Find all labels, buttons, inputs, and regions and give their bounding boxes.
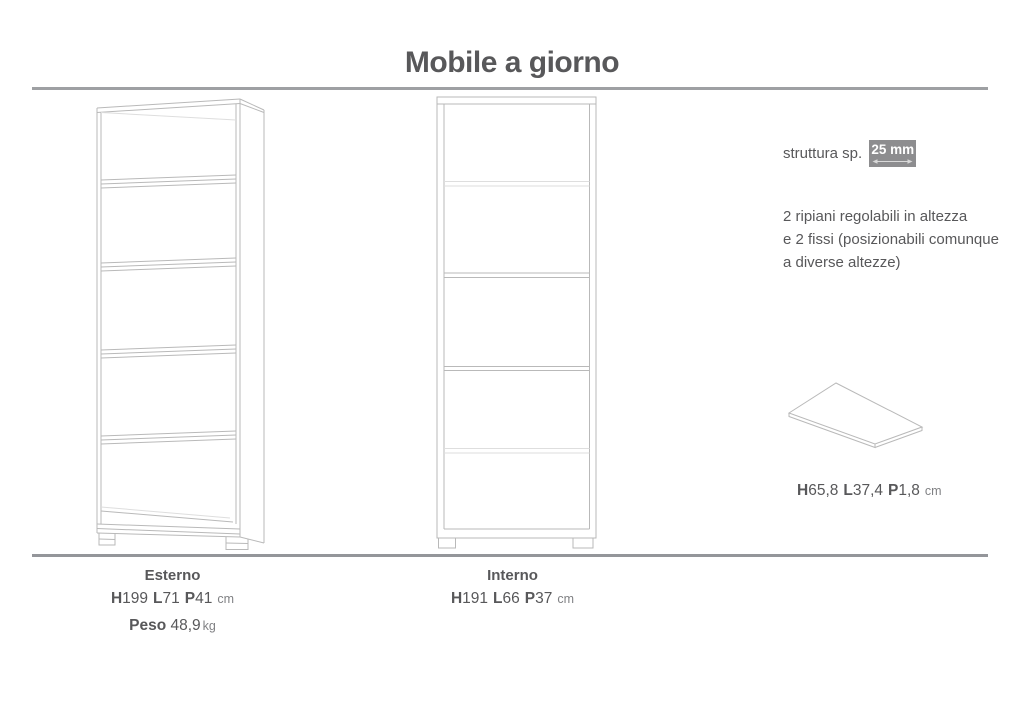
- structure-thickness-row: struttura sp. 25 mm: [783, 140, 916, 167]
- esterno-unit: cm: [217, 592, 234, 606]
- weight-unit: kg: [203, 619, 216, 633]
- esterno-p-value: 41: [195, 590, 212, 607]
- panel-l-value: 37,4: [853, 482, 883, 499]
- panel-h-label: H: [797, 482, 808, 499]
- esterno-h-label: H: [111, 590, 122, 607]
- shelves-note: 2 ripiani regolabili in altezza e 2 fiss…: [783, 205, 999, 274]
- shelf-panel-drawing: [780, 378, 930, 453]
- interno-p-label: P: [525, 590, 535, 607]
- panel-l-label: L: [843, 482, 852, 499]
- esterno-dimensions: H199L71P41cm: [60, 590, 285, 608]
- esterno-l-value: 71: [163, 590, 180, 607]
- panel-p-value: 1,8: [898, 482, 920, 499]
- cabinet-shelf-lines: [101, 175, 236, 444]
- panel-unit: cm: [925, 484, 942, 498]
- interno-h-label: H: [451, 590, 462, 607]
- weight-label: Peso: [129, 617, 166, 634]
- structure-thickness-label: struttura sp.: [783, 140, 862, 167]
- front-frame: [437, 97, 596, 538]
- cabinet-interior-lines: [101, 113, 236, 519]
- weight-value: 48,9: [171, 617, 201, 634]
- cabinet-frame: [97, 99, 264, 543]
- esterno-h-value: 199: [122, 590, 148, 607]
- fixed-shelf-lines: [444, 273, 590, 371]
- panel-h-value: 65,8: [808, 482, 838, 499]
- esterno-l-label: L: [153, 590, 162, 607]
- interno-title: Interno: [400, 567, 625, 585]
- page-title: Mobile a giorno: [0, 46, 1024, 80]
- interno-spec-block: Interno H191L66P37cm: [400, 567, 625, 608]
- front-feet: [439, 538, 594, 548]
- interno-l-label: L: [493, 590, 502, 607]
- shelf-panel-top-face: [789, 383, 922, 444]
- esterno-spec-block: Esterno H199L71P41cm Peso 48,9kg: [60, 567, 285, 635]
- cabinet-external-drawing: [80, 93, 275, 563]
- cabinet-plinth: [97, 511, 264, 543]
- interno-h-value: 191: [462, 590, 488, 607]
- adjustable-shelf-lines: [444, 182, 590, 454]
- interno-l-value: 66: [503, 590, 520, 607]
- thickness-value: 25 mm: [871, 142, 914, 158]
- esterno-p-label: P: [185, 590, 195, 607]
- width-arrow-icon: [872, 158, 913, 165]
- title-divider: [32, 87, 988, 90]
- panel-p-label: P: [888, 482, 898, 499]
- interno-p-value: 37: [535, 590, 552, 607]
- cabinet-internal-drawing: [430, 93, 605, 563]
- shelf-panel-dimensions: H65,8L37,4P1,8cm: [797, 482, 942, 500]
- spec-sheet-page: Mobile a giorno: [0, 0, 1024, 724]
- interno-unit: cm: [557, 592, 574, 606]
- weight-row: Peso 48,9kg: [60, 617, 285, 635]
- esterno-title: Esterno: [60, 567, 285, 585]
- interno-dimensions: H191L66P37cm: [400, 590, 625, 608]
- thickness-highlight-box: 25 mm: [869, 140, 916, 167]
